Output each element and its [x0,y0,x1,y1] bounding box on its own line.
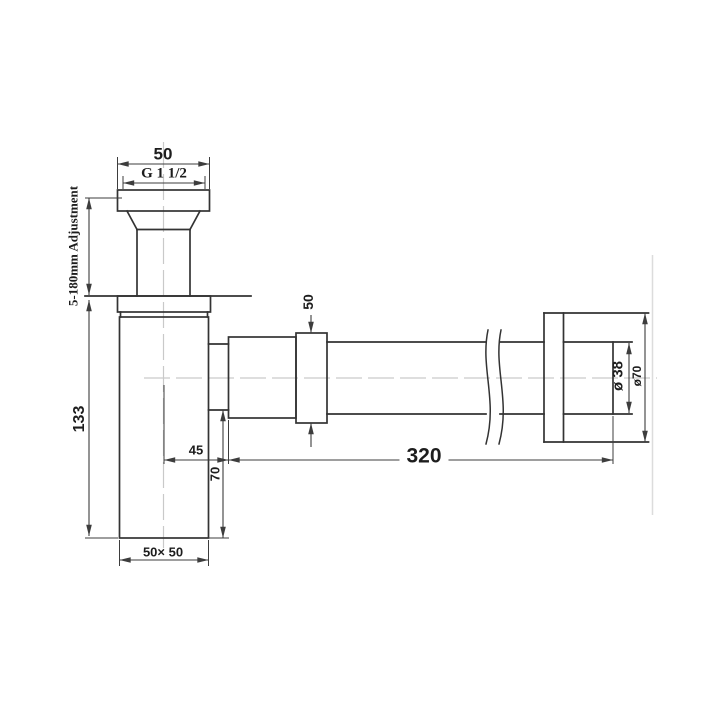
dim-label-pipe-length: 320 [399,446,448,467]
dim-label-top-width: 50 [154,146,173,163]
dim-label-outlet-drop: 70 [209,467,222,481]
dim-label-pipe-diameter: ø 38 [611,361,626,391]
technical-drawing-canvas: 50 G 1 1/2 5-180mm Adjustment 133 50× 50… [0,0,720,720]
dim-label-body-footprint: 50× 50 [143,546,183,559]
trap-outline [85,190,649,538]
dim-label-adjustment-range: 5-180mm Adjustment [67,186,80,306]
dim-label-body-height: 133 [72,406,88,433]
dim-label-nut-height: 50 [301,294,315,310]
centerlines [144,142,657,548]
pipe-break-line [499,330,503,444]
pipe-break-line [486,330,490,444]
dim-label-flange-diameter: ø70 [631,366,643,387]
dim-label-trap-offset: 45 [189,444,203,457]
dim-label-thread-size: G 1 1/2 [141,167,187,182]
dimension-lines [89,164,645,560]
extension-lines [85,157,613,566]
